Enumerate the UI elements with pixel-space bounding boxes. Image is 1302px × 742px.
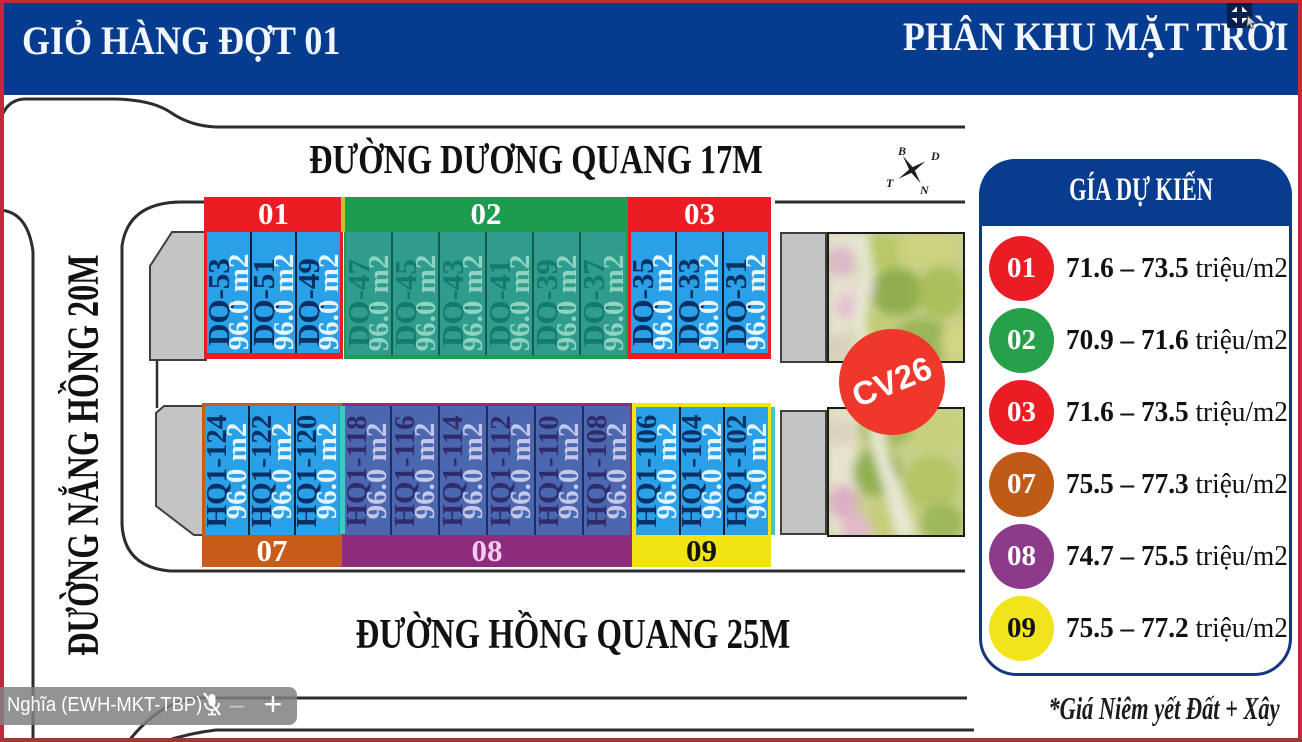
svg-text:D: D xyxy=(930,149,940,163)
svg-text:T: T xyxy=(886,176,894,190)
svg-text:N: N xyxy=(919,183,930,197)
svg-text:B: B xyxy=(897,144,906,158)
